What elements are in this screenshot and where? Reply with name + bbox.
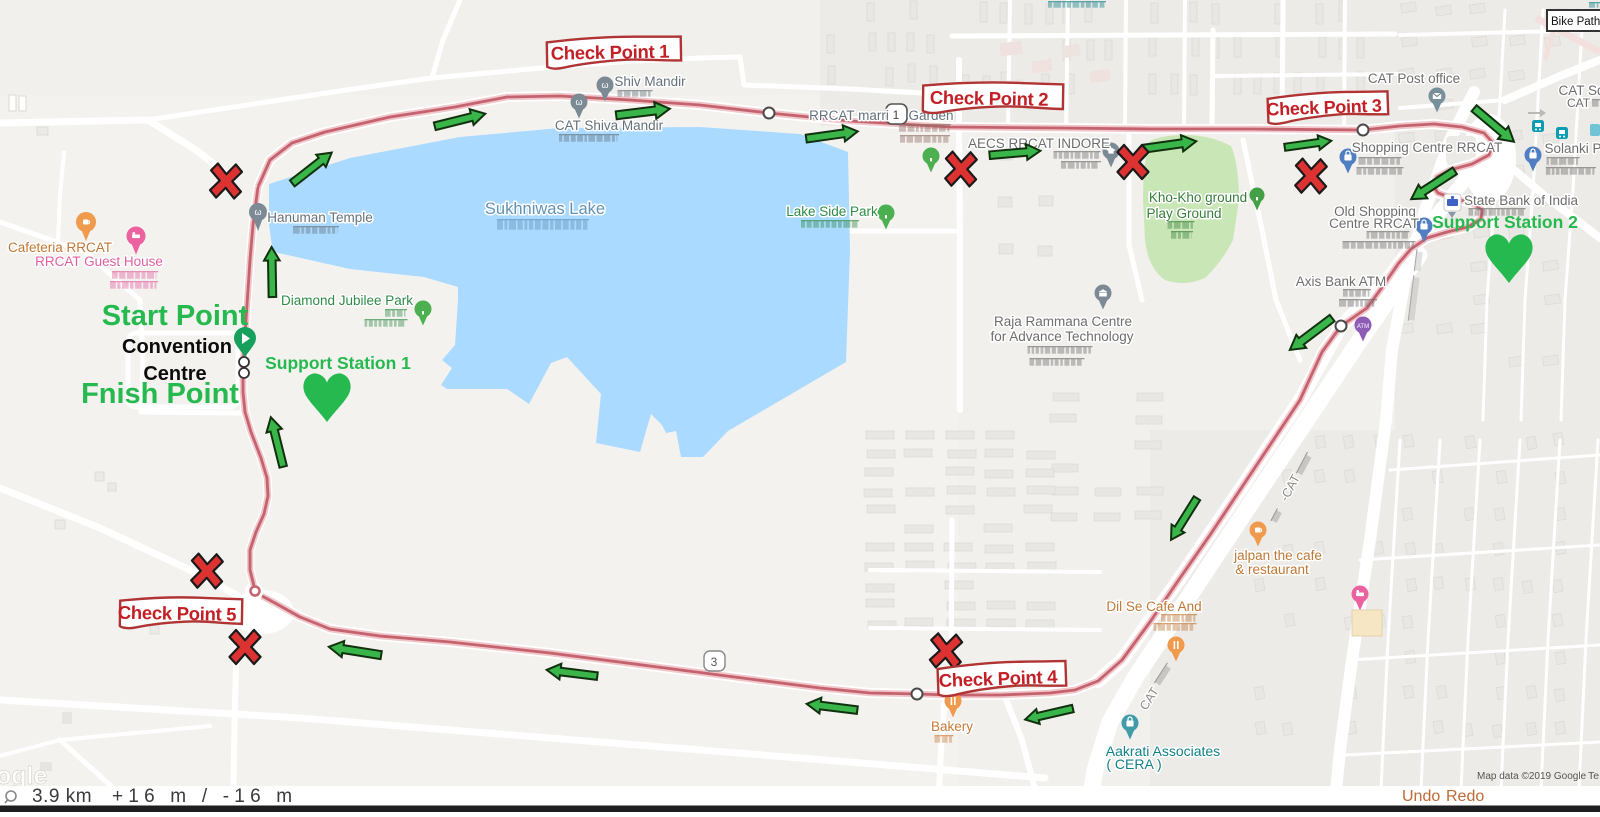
svg-text:Map data ©2019 Google: Map data ©2019 Google (1477, 771, 1587, 782)
svg-text:+16 m / -16 m: +16 m / -16 m (112, 786, 297, 807)
svg-text:Shopping Centre RRCAT: Shopping Centre RRCAT (1352, 140, 1503, 155)
svg-text:Play Ground: Play Ground (1146, 206, 1221, 221)
svg-text:Centre RRCAT: Centre RRCAT (1329, 216, 1419, 231)
svg-text:AECS RRCAT INDORE: AECS RRCAT INDORE (968, 136, 1110, 151)
svg-text:Lake Side Park: Lake Side Park (786, 204, 878, 219)
svg-text:Kho-Kho ground: Kho-Kho ground (1149, 190, 1247, 205)
svg-text:Convention: Convention (122, 336, 232, 358)
svg-text:Bike Paths: Bike Paths (1551, 16, 1600, 28)
svg-text:& restaurant: & restaurant (1235, 562, 1309, 577)
svg-text:Te: Te (1588, 770, 1599, 782)
svg-text:ω: ω (575, 97, 582, 107)
svg-text:Support Station 2: Support Station 2 (1432, 212, 1578, 232)
svg-text:ω: ω (601, 80, 608, 90)
svg-text:Solanki P: Solanki P (1544, 141, 1600, 156)
svg-text:Check Point 4: Check Point 4 (938, 666, 1058, 691)
svg-text:Dil Se Cafe And: Dil Se Cafe And (1106, 599, 1201, 614)
svg-text:Check Point 1: Check Point 1 (551, 41, 670, 64)
svg-text:Start Point: Start Point (102, 300, 249, 332)
svg-text:Shiv Mandir: Shiv Mandir (614, 74, 686, 89)
svg-text:Fnish Point: Fnish Point (81, 378, 239, 410)
svg-text:CAT Shiva Mandir: CAT Shiva Mandir (555, 118, 664, 133)
svg-text:Cafeteria RRCAT: Cafeteria RRCAT (8, 240, 112, 255)
svg-text:CAT: CAT (1567, 96, 1591, 110)
svg-text:3.9 km: 3.9 km (32, 786, 92, 807)
svg-text:Redo: Redo (1446, 788, 1484, 805)
svg-text:RRCAT Guest House: RRCAT Guest House (35, 254, 163, 269)
svg-text:Axis Bank ATM: Axis Bank ATM (1296, 274, 1387, 289)
svg-text:ω: ω (254, 207, 261, 217)
svg-text:Sukhniwas Lake: Sukhniwas Lake (485, 200, 605, 218)
svg-text:( CERA ): ( CERA ) (1106, 756, 1161, 772)
svg-text:RRCAT marri: RRCAT marri (809, 108, 889, 123)
svg-text:Raja Rammana Centre: Raja Rammana Centre (994, 314, 1132, 329)
svg-text:jalpan the cafe: jalpan the cafe (1233, 548, 1322, 563)
svg-text:Check Point 5: Check Point 5 (118, 602, 237, 625)
svg-text:Check Point 2: Check Point 2 (930, 87, 1049, 110)
svg-text:Diamond Jubilee Park: Diamond Jubilee Park (281, 293, 413, 308)
svg-text:for Advance Technology: for Advance Technology (990, 329, 1133, 344)
svg-text:3: 3 (711, 655, 718, 669)
svg-text:State Bank of India: State Bank of India (1464, 193, 1579, 208)
svg-text:Hanuman Temple: Hanuman Temple (267, 210, 373, 225)
svg-text:Support Station 1: Support Station 1 (265, 353, 411, 373)
svg-text:Bakery: Bakery (931, 719, 973, 734)
svg-text:CAT Post office: CAT Post office (1368, 71, 1460, 86)
svg-text:Undo: Undo (1402, 788, 1440, 805)
svg-text:1: 1 (893, 108, 900, 122)
svg-text:ATM: ATM (1357, 324, 1369, 330)
svg-text:Check Point 3: Check Point 3 (1266, 96, 1382, 120)
